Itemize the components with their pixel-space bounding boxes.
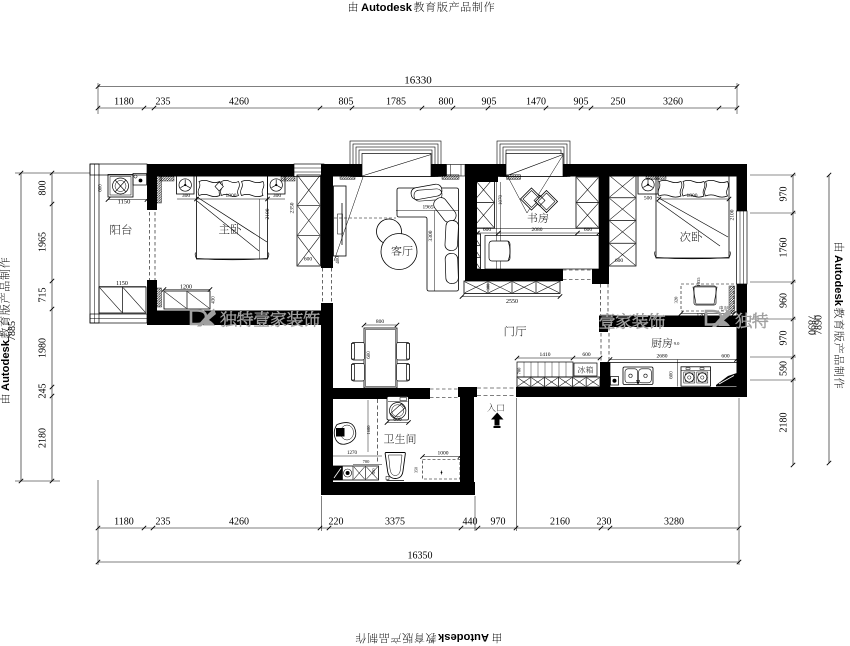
svg-text:970: 970	[491, 517, 506, 528]
svg-text:600: 600	[367, 351, 372, 359]
svg-text:380: 380	[371, 469, 376, 475]
svg-text:7885: 7885	[7, 321, 18, 341]
svg-text:16330: 16330	[404, 75, 432, 87]
svg-text:600: 600	[393, 417, 402, 423]
svg-text:220: 220	[329, 517, 344, 528]
svg-text:805: 805	[339, 97, 354, 108]
svg-text:600: 600	[304, 257, 313, 263]
svg-text:16350: 16350	[408, 551, 433, 562]
svg-text:1000: 1000	[438, 451, 449, 457]
svg-text:7890: 7890	[814, 315, 825, 335]
svg-text:1410: 1410	[540, 352, 551, 358]
svg-text:235: 235	[156, 517, 171, 528]
svg-text:300: 300	[486, 283, 491, 291]
svg-text:1180: 1180	[114, 97, 134, 108]
svg-text:600: 600	[615, 258, 624, 264]
svg-text:700: 700	[363, 459, 371, 464]
svg-text:1785: 1785	[386, 97, 406, 108]
svg-text:Autodesk: Autodesk	[437, 631, 489, 643]
svg-text:960: 960	[779, 293, 790, 308]
svg-text:2680: 2680	[657, 354, 668, 360]
svg-text:400: 400	[336, 256, 341, 264]
svg-text:600: 600	[483, 227, 492, 233]
svg-text:3260: 3260	[663, 97, 683, 108]
svg-text:1980: 1980	[38, 338, 49, 358]
svg-text:2180: 2180	[38, 428, 49, 448]
svg-text:4260: 4260	[229, 97, 249, 108]
svg-text:1800: 1800	[687, 193, 698, 199]
svg-text:1150: 1150	[116, 281, 128, 287]
svg-text:905: 905	[574, 97, 589, 108]
svg-text:600: 600	[582, 352, 591, 358]
svg-text:600: 600	[148, 296, 153, 304]
svg-text:4260: 4260	[229, 517, 249, 528]
svg-text:1965: 1965	[423, 205, 434, 211]
svg-text:905: 905	[482, 97, 497, 108]
svg-text:600: 600	[99, 184, 104, 192]
svg-text:600: 600	[721, 354, 730, 360]
svg-text:2100: 2100	[265, 208, 271, 219]
svg-text:1070: 1070	[499, 195, 504, 206]
svg-text:320: 320	[674, 296, 679, 304]
svg-text:1760: 1760	[779, 238, 790, 258]
svg-text:2160: 2160	[550, 517, 570, 528]
svg-text:350: 350	[414, 467, 419, 473]
svg-text:3375: 3375	[385, 517, 405, 528]
svg-text:600: 600	[670, 371, 675, 379]
svg-text:2550: 2550	[506, 299, 518, 305]
svg-text:800: 800	[376, 319, 385, 325]
svg-text:9.0: 9.0	[674, 341, 680, 346]
svg-text:1180: 1180	[114, 517, 134, 528]
svg-text:590: 590	[779, 361, 790, 376]
svg-text:2180: 2180	[779, 413, 790, 433]
svg-text:700: 700	[517, 367, 522, 375]
svg-text:1600: 1600	[366, 425, 371, 435]
svg-text:970: 970	[779, 187, 790, 202]
svg-text:715: 715	[38, 288, 49, 303]
svg-text:300: 300	[273, 193, 282, 199]
svg-text:1470: 1470	[526, 97, 546, 108]
svg-text:300: 300	[182, 193, 191, 199]
svg-text:800: 800	[439, 97, 454, 108]
svg-text:500: 500	[644, 196, 653, 202]
svg-text:3300: 3300	[428, 230, 434, 241]
svg-text:800: 800	[38, 181, 49, 196]
svg-text:Autodesk: Autodesk	[361, 2, 413, 14]
svg-text:2350: 2350	[290, 202, 296, 213]
svg-text:Autodesk: Autodesk	[0, 339, 12, 391]
svg-text:1035: 1035	[696, 277, 701, 287]
svg-text:430: 430	[212, 296, 217, 304]
svg-text:230: 230	[597, 517, 612, 528]
svg-text:600: 600	[584, 227, 593, 233]
svg-text:1270: 1270	[347, 451, 358, 456]
svg-text:2100: 2100	[730, 209, 736, 220]
svg-text:1800: 1800	[226, 193, 237, 199]
svg-text:245: 245	[38, 384, 49, 399]
svg-text:235: 235	[156, 97, 171, 108]
svg-text:250: 250	[611, 97, 626, 108]
svg-text:Autodesk: Autodesk	[832, 255, 844, 307]
svg-text:3280: 3280	[664, 517, 684, 528]
svg-text:1965: 1965	[38, 232, 49, 252]
svg-text:2080: 2080	[532, 227, 543, 233]
svg-text:970: 970	[779, 331, 790, 346]
